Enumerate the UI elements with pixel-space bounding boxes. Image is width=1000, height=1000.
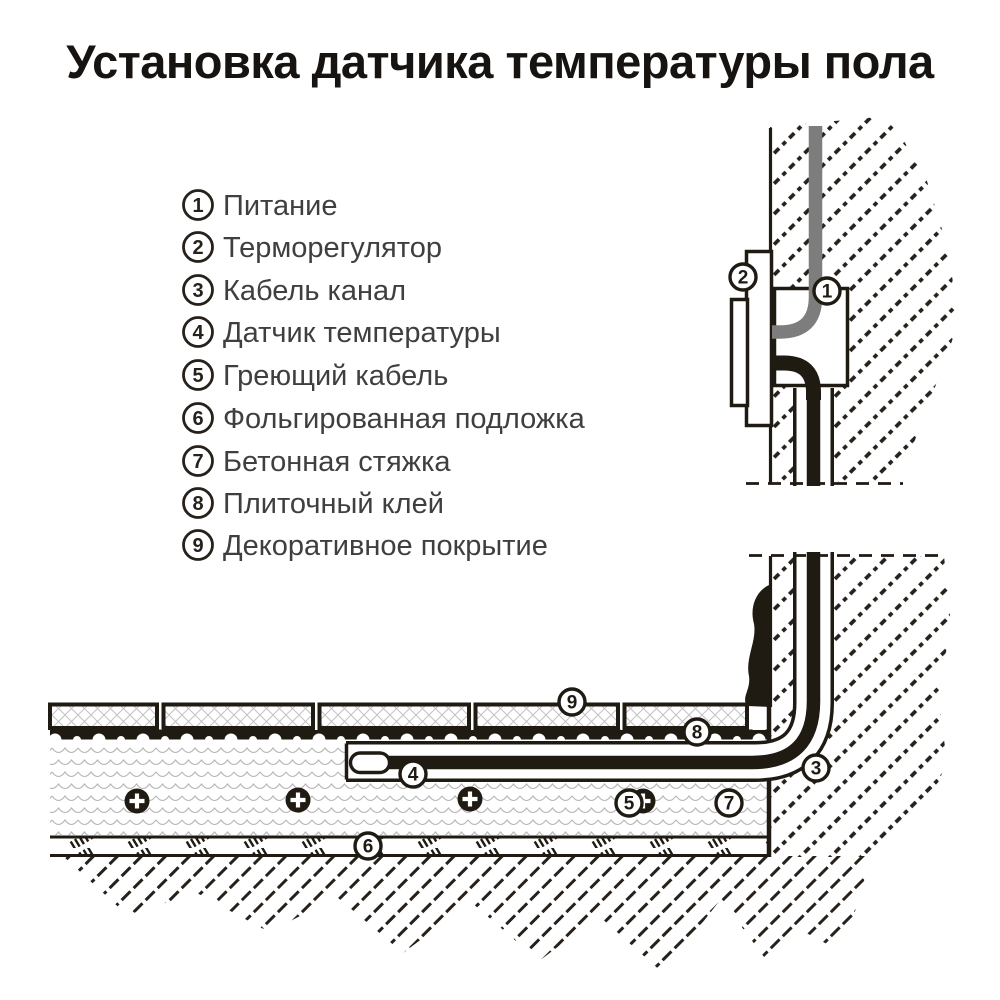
callout-num-6: 6: [363, 837, 374, 858]
sensor-bulb: [351, 753, 390, 773]
legend-label-4: Датчик температуры: [223, 317, 501, 349]
legend-num-7: 7: [192, 451, 203, 473]
tile: [50, 705, 157, 729]
underlay-layer: [50, 839, 769, 856]
callout-num-7: 7: [724, 794, 735, 815]
callout-num-4: 4: [408, 765, 419, 786]
callout-5: 5: [616, 790, 642, 816]
thermostat-knob: [732, 300, 748, 406]
legend-item-1: 1 Питание: [184, 190, 338, 222]
callout-num-5: 5: [624, 794, 635, 815]
heating-cable-section: [125, 789, 150, 814]
sealant-bead: [745, 584, 771, 707]
legend-item-6: 6 Фольгированная подложка: [184, 403, 586, 435]
legend-num-8: 8: [192, 493, 203, 515]
legend-item-8: 8 Плиточный клей: [184, 488, 444, 520]
subfloor-ground: [63, 856, 870, 973]
legend-num-2: 2: [192, 237, 203, 259]
callout-num-2: 2: [738, 268, 749, 289]
legend-item-4: 4 Датчик температуры: [184, 317, 501, 349]
diagram: Установка датчика температуры пола 1 Пит…: [0, 0, 1000, 1000]
adhesive-layer: [50, 730, 769, 740]
legend-num-5: 5: [192, 365, 203, 387]
legend-label-3: Кабель канал: [223, 275, 406, 307]
callout-num-8: 8: [692, 723, 703, 744]
heating-cable-section: [458, 787, 483, 812]
legend-label-2: Терморегулятор: [223, 232, 442, 264]
legend-label-8: Плиточный клей: [223, 488, 444, 520]
callout-8: 8: [684, 719, 710, 745]
legend-item-3: 3 Кабель канал: [184, 275, 407, 307]
callout-7: 7: [716, 790, 742, 816]
legend-label-6: Фольгированная подложка: [223, 403, 586, 435]
tile: [320, 705, 470, 729]
section-break-gap: [737, 486, 1000, 552]
heating-cable-section: [286, 788, 311, 813]
callout-2: 2: [730, 264, 756, 290]
legend-item-5: 5 Греющий кабель: [184, 360, 449, 392]
callout-4: 4: [400, 761, 426, 787]
page-title: Установка датчика температуры пола: [66, 35, 935, 88]
callout-num-3: 3: [811, 759, 822, 780]
legend-item-9: 9 Декоративное покрытие: [184, 530, 548, 562]
callout-9: 9: [559, 689, 585, 715]
callout-num-1: 1: [822, 282, 833, 303]
legend-item-2: 2 Терморегулятор: [184, 232, 442, 264]
callout-1: 1: [814, 278, 840, 304]
legend-num-4: 4: [192, 322, 204, 344]
legend: 1 Питание 2 Терморегулятор 3 Кабель кана…: [184, 190, 586, 562]
legend-num-9: 9: [192, 535, 203, 557]
tile-layer: [50, 705, 747, 729]
legend-label-9: Декоративное покрытие: [223, 530, 548, 562]
legend-num-1: 1: [192, 195, 203, 217]
legend-label-1: Питание: [223, 190, 337, 222]
diagram-page: Установка датчика температуры пола 1 Пит…: [0, 0, 1000, 1000]
callout-6: 6: [355, 833, 381, 859]
tile: [476, 705, 619, 729]
legend-item-7: 7 Бетонная стяжка: [184, 446, 452, 478]
tile: [164, 705, 314, 729]
legend-num-3: 3: [192, 280, 203, 302]
legend-num-6: 6: [192, 408, 203, 430]
legend-label-7: Бетонная стяжка: [223, 446, 451, 478]
callout-num-9: 9: [567, 693, 578, 714]
legend-label-5: Греющий кабель: [223, 360, 448, 392]
callout-3: 3: [803, 755, 829, 781]
